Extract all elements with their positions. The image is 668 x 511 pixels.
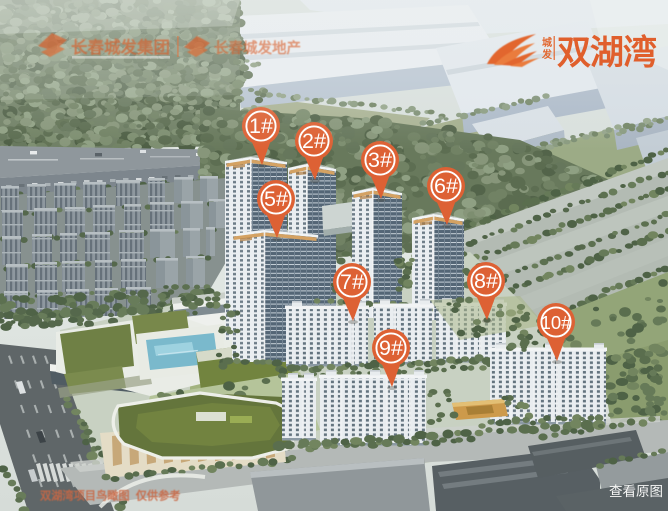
svg-text:长春城发集团: 长春城发集团 (71, 37, 170, 57)
svg-text:发: 发 (541, 48, 553, 61)
svg-text:3#: 3# (368, 148, 392, 172)
svg-text:9#: 9# (379, 336, 403, 360)
svg-text:10#: 10# (541, 312, 573, 333)
svg-text:双湖湾项目鸟瞰图 仅供参考: 双湖湾项目鸟瞰图 仅供参考 (40, 489, 180, 503)
svg-text:8#: 8# (474, 269, 498, 293)
svg-text:城: 城 (542, 36, 552, 49)
svg-text:长春城发地产: 长春城发地产 (214, 39, 301, 57)
svg-text:双湖湾: 双湖湾 (557, 33, 657, 72)
svg-text:6#: 6# (434, 174, 458, 198)
svg-text:7#: 7# (340, 270, 364, 294)
svg-text:查看原图: 查看原图 (609, 484, 663, 499)
svg-text:5#: 5# (264, 187, 288, 211)
